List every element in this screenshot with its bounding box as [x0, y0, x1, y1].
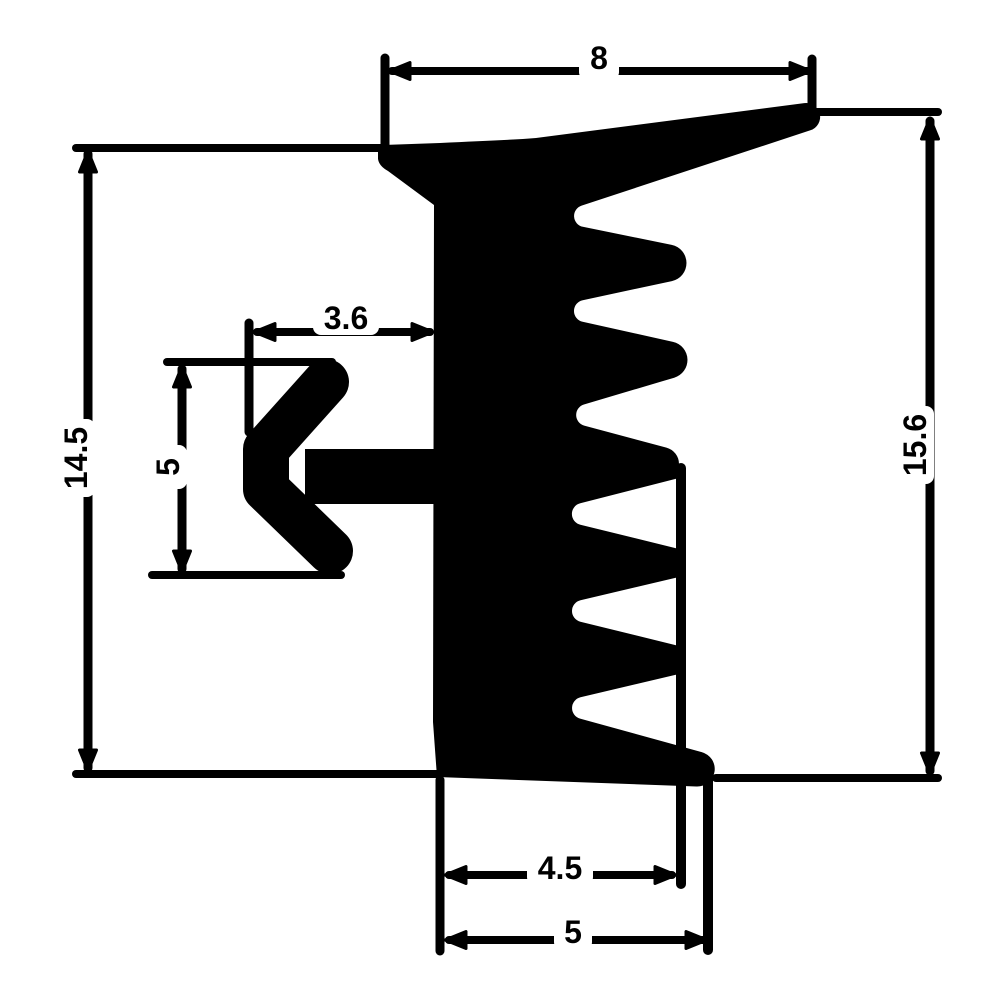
svg-text:5: 5 [564, 914, 582, 950]
svg-text:5: 5 [150, 458, 186, 476]
svg-text:8: 8 [590, 40, 608, 76]
svg-text:15.6: 15.6 [897, 414, 933, 476]
svg-text:3.6: 3.6 [324, 300, 368, 336]
svg-text:14.5: 14.5 [58, 427, 94, 489]
svg-text:4.5: 4.5 [538, 850, 582, 886]
